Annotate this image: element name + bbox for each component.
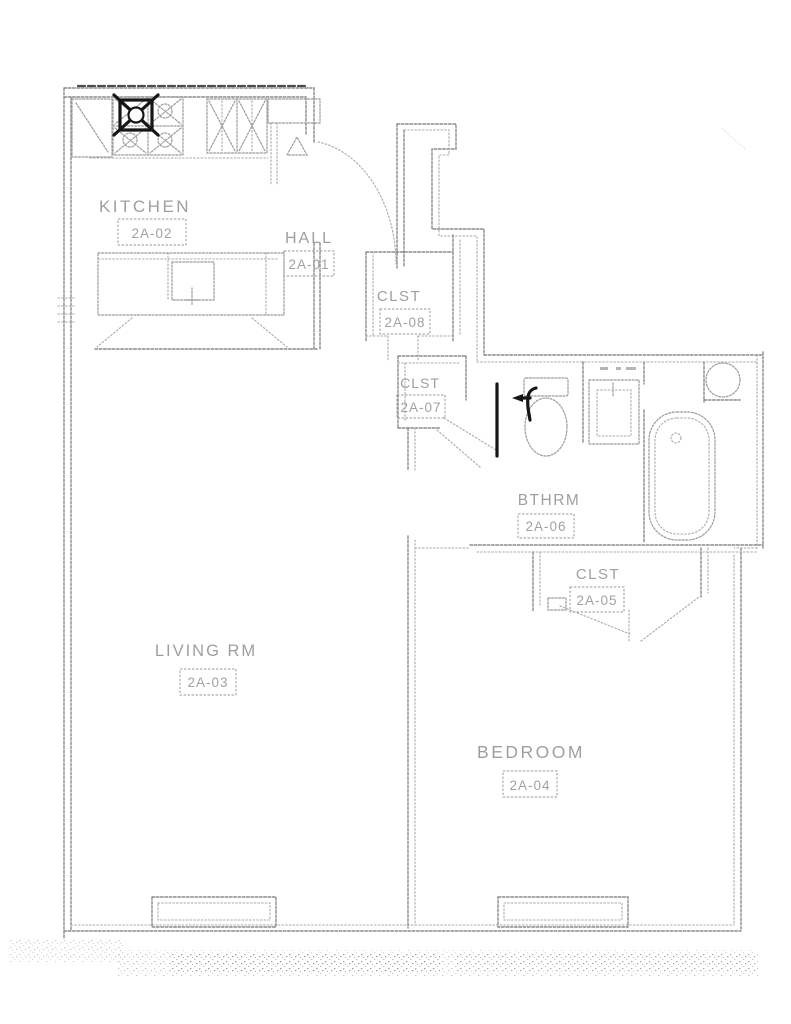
room-tag-bathroom: 2A-06	[525, 519, 566, 534]
room-label-living-room: LIVING RM	[155, 642, 257, 660]
room-tag-kitchen: 2A-02	[131, 226, 172, 241]
walls-bedroom-closet	[533, 548, 708, 641]
washer-icon	[706, 363, 740, 397]
room-label-closet-hall: CLST	[377, 288, 421, 305]
room-label-closet-bedroom: CLST	[576, 566, 620, 583]
room-label-bathroom: BTHRM	[518, 492, 581, 509]
window-bays	[152, 897, 628, 927]
room-label-hall: HALL	[285, 230, 333, 247]
kitchen-fixtures	[72, 95, 320, 349]
scan-speck	[600, 367, 608, 370]
room-tag-closet-hall: 2A-08	[384, 315, 425, 330]
tub-drain	[671, 433, 681, 443]
room-tag-closet-hall-south: 2A-07	[400, 400, 441, 415]
walls-entry-vestibule	[287, 124, 745, 362]
walls-living-bedroom-divider	[408, 428, 470, 928]
kitchen-sink	[172, 262, 214, 300]
room-tag-living-room: 2A-03	[187, 675, 228, 690]
room-label-bedroom: BEDROOM	[477, 742, 585, 762]
floor-plan-drawing: KITCHEN 2A-02 HALL 2A-01 CLST 2A-08 CLST…	[0, 0, 791, 1024]
scan-speck	[616, 367, 621, 370]
room-tag-hall: 2A-01	[288, 257, 329, 272]
window-bay-right	[498, 897, 628, 927]
scan-speck	[626, 367, 636, 370]
floor-plan-page: KITCHEN 2A-02 HALL 2A-01 CLST 2A-08 CLST…	[0, 0, 791, 1024]
vanity-sink	[589, 367, 639, 444]
room-label-closet-hall-south: CLST	[400, 375, 440, 391]
entry-door-leaf	[397, 124, 404, 268]
walls-hall-closets	[314, 235, 496, 468]
counter-appliances	[90, 99, 320, 185]
marked-fixture-bold	[114, 95, 158, 135]
bathtub	[649, 412, 715, 540]
bathroom-door-swing	[437, 418, 496, 468]
pass-through-splay	[97, 318, 287, 347]
room-tag-bedroom: 2A-04	[509, 778, 550, 793]
kitchen-peninsula	[95, 253, 318, 349]
scan-noise-band	[8, 940, 758, 976]
shaft-triangle-icon	[287, 137, 307, 155]
walls-bathroom	[470, 355, 763, 552]
closet-jog	[548, 598, 566, 610]
scan-artifact-mark	[722, 128, 745, 149]
room-tag-closet-bedroom: 2A-05	[576, 593, 617, 608]
upper-cabinet	[268, 99, 320, 123]
room-label-kitchen: KITCHEN	[99, 197, 191, 216]
window-bay-left	[152, 897, 276, 927]
kitchen-faucet	[186, 288, 198, 306]
